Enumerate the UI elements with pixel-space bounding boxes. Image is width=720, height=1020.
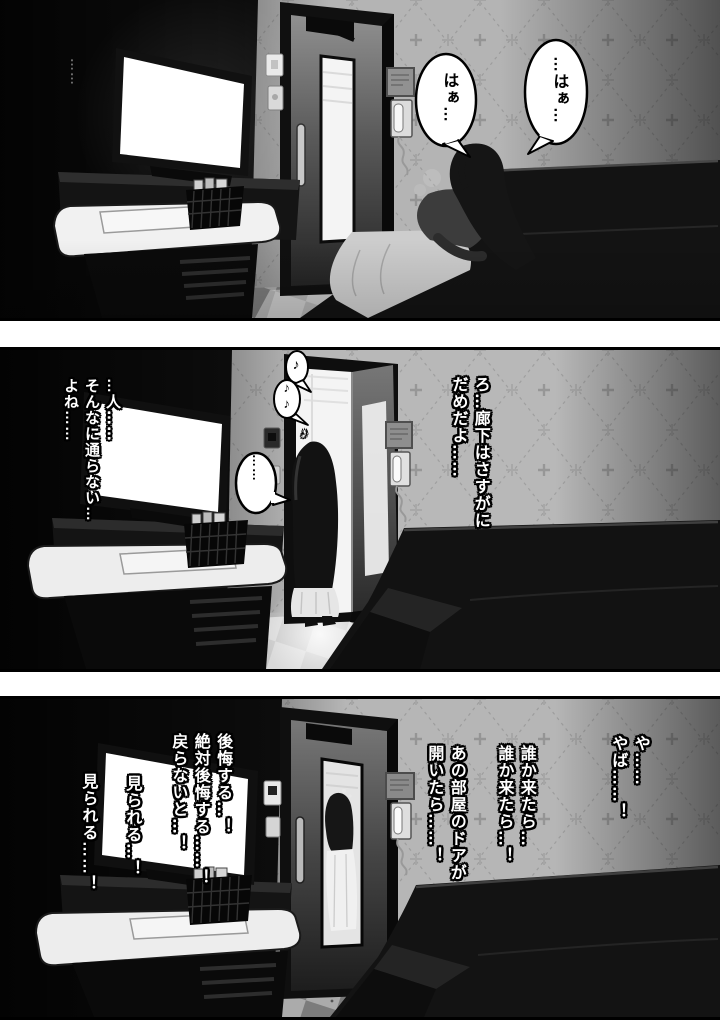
sigh-bubble-left-text: はぁ…: [437, 72, 459, 123]
music-note-icon: ♪: [289, 356, 303, 373]
panel-1-artwork: [0, 0, 720, 318]
door-window: [321, 56, 354, 242]
switch-plate: [266, 817, 280, 837]
seen-long-text: 見られる……！: [76, 773, 98, 892]
panel-1: …はぁ… はぁ… ……: [0, 0, 720, 321]
wall-plaque: [386, 422, 412, 448]
monologue-left-text: …人…… そんなに通らない… よね……: [60, 378, 123, 522]
panel-2: ろ…廊下はさすがに だめだよ…… …人…… そんなに通らない… よね…… …… …: [0, 347, 720, 672]
figure-woman-doorway: [291, 441, 339, 627]
exclaim-right-text: や…… やば……！: [606, 735, 651, 820]
manga-page: …はぁ… はぁ… ……: [0, 0, 720, 1020]
seen-short-text: 見られる…！: [120, 775, 142, 877]
music-note-stray-icon: ♪: [298, 426, 310, 441]
regret-text: 後悔する…！ 絶対後悔する……！ 戻らないと…！: [166, 733, 233, 886]
bubble-dots-text: ……: [248, 454, 266, 482]
wall-plaque: [387, 68, 414, 96]
wall-ellipsis-text: ……: [66, 58, 84, 86]
worry-door-text: あの部屋のドアが 開いたら……！: [422, 745, 467, 881]
door-handle: [297, 124, 305, 186]
door-window: [362, 401, 389, 576]
sigh-bubble-right-text: …はぁ…: [547, 56, 569, 124]
dialogue-right-text: ろ…廊下はさすがに だめだよ……: [446, 376, 491, 529]
worry-someone-text: 誰か来たら… 誰か来たら…！: [492, 745, 537, 864]
music-notes-icon: ♪♪: [279, 380, 293, 412]
wall-plaque: [386, 773, 414, 799]
door-handle: [296, 817, 304, 883]
panel-3: や…… やば……！ 誰か来たら… 誰か来たら…！ あの部屋のドアが 開いたら………: [0, 696, 720, 1020]
door-window: [322, 759, 362, 947]
